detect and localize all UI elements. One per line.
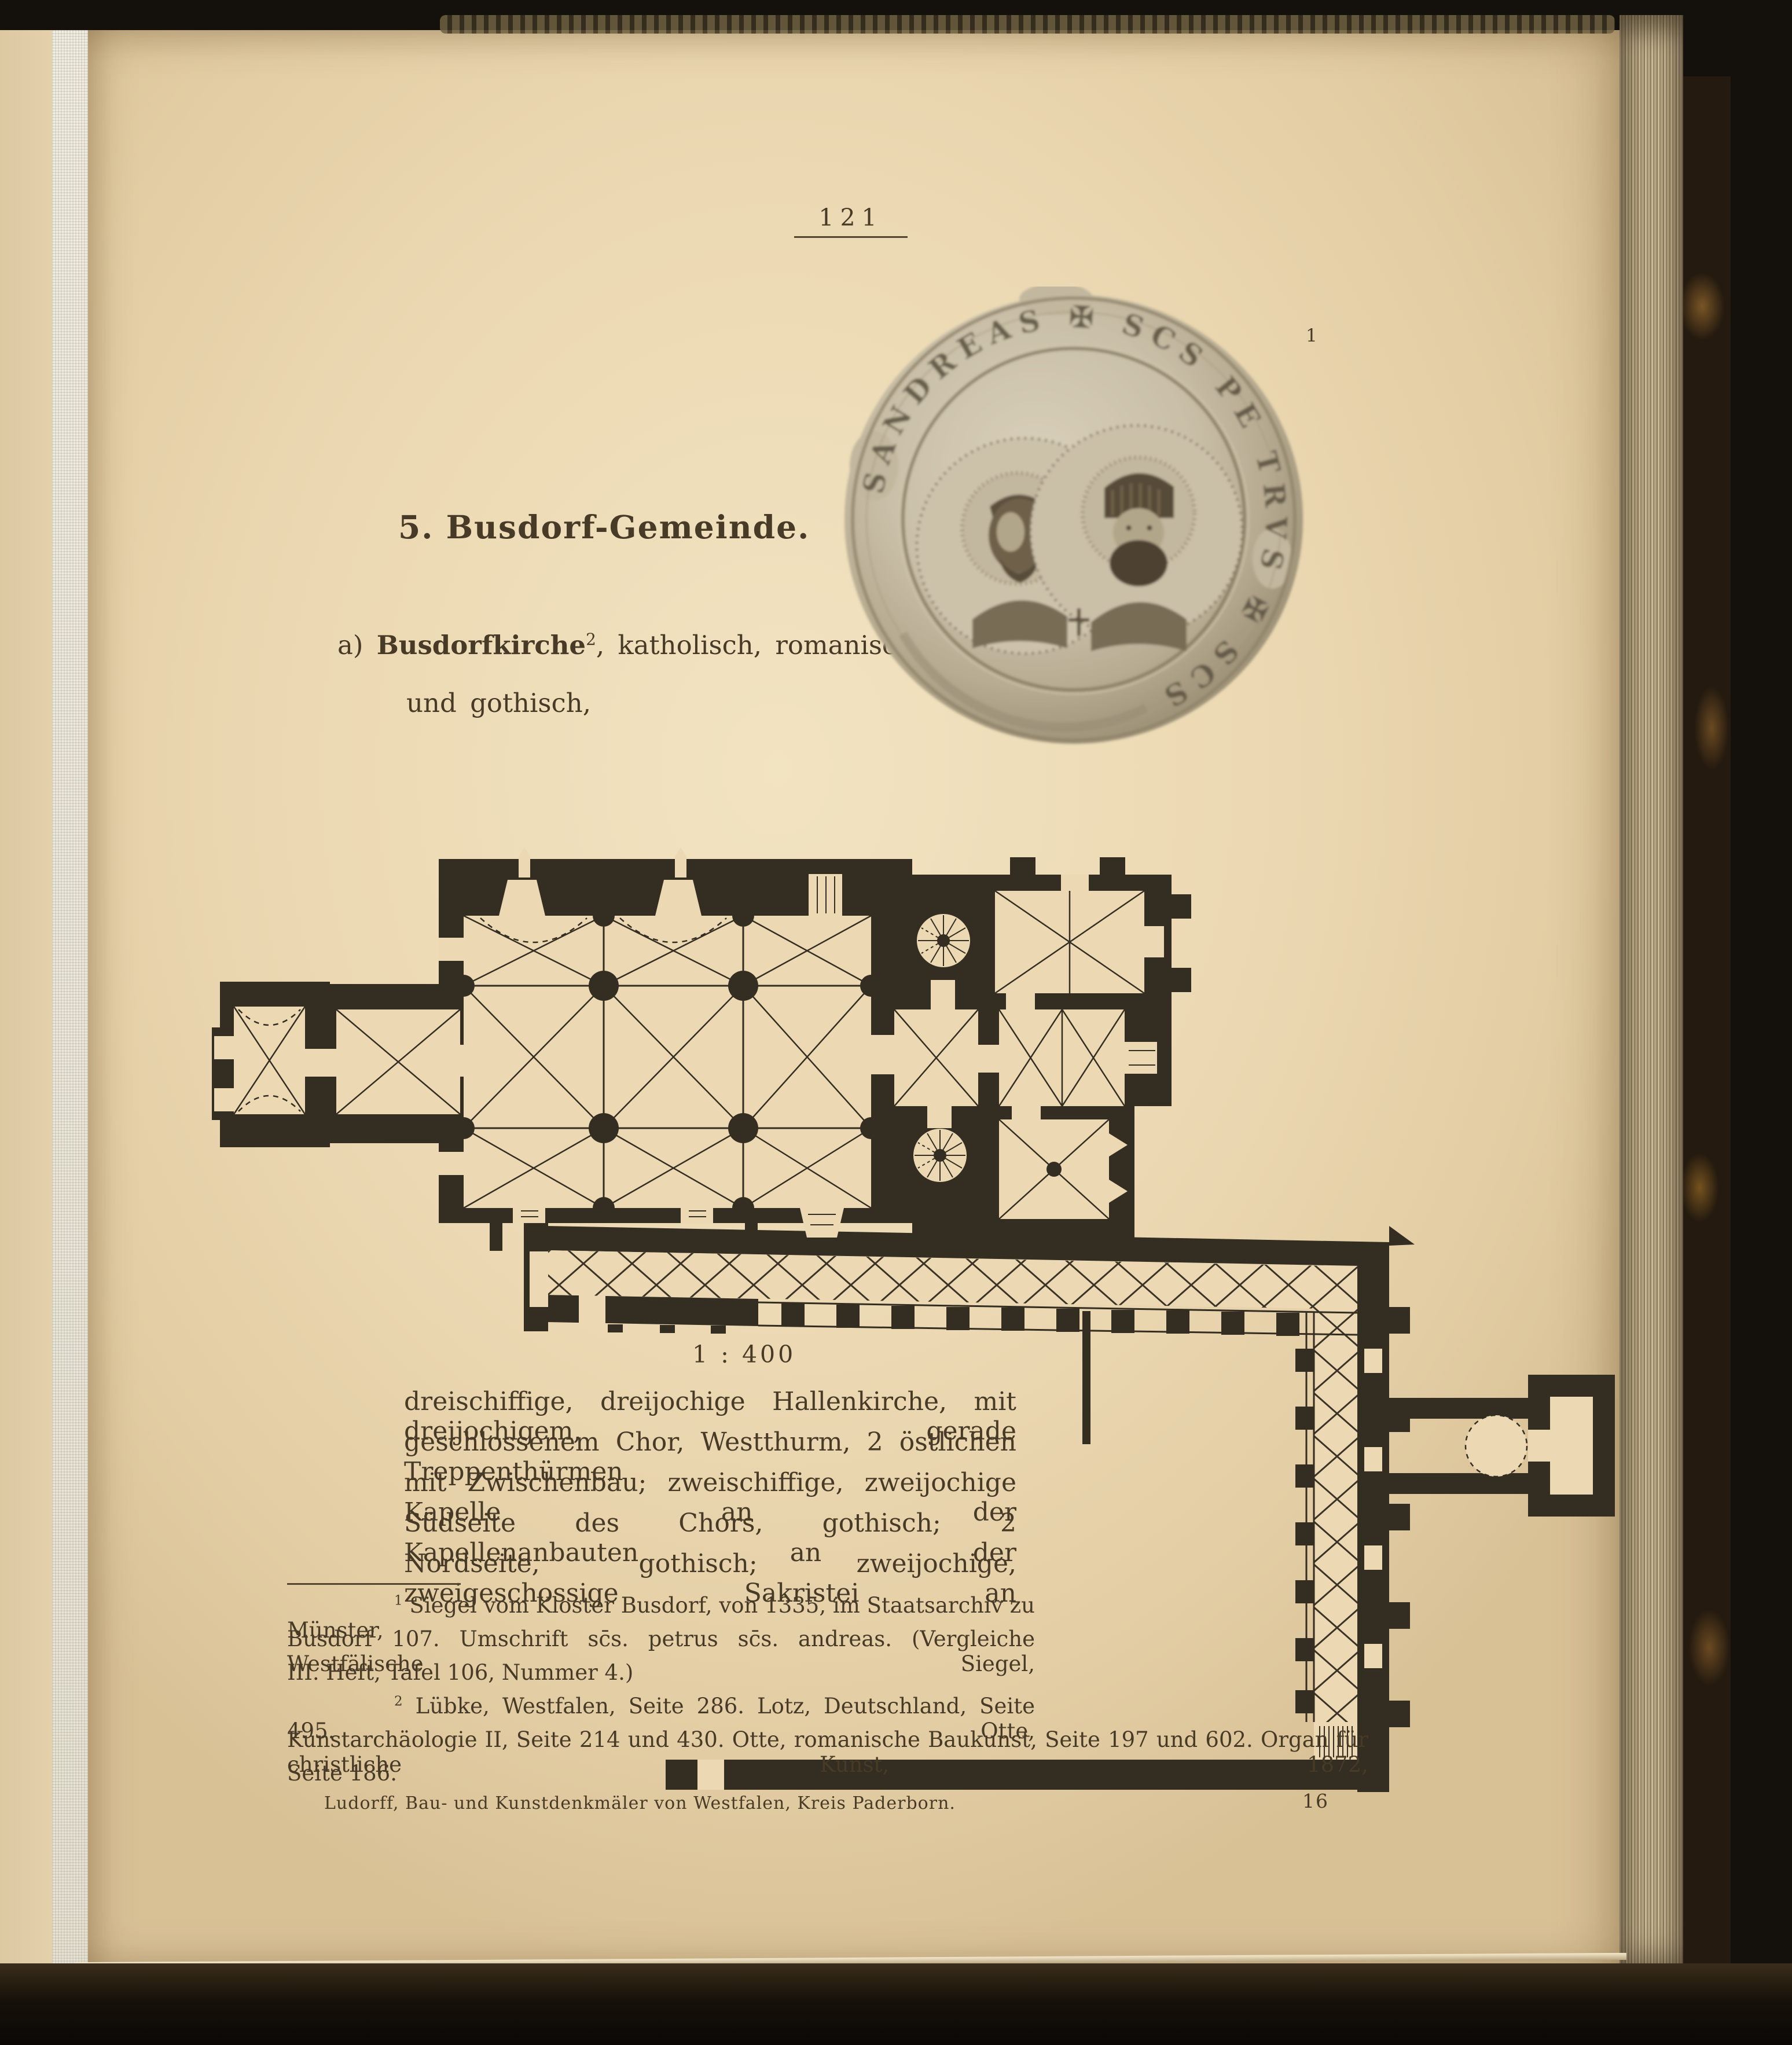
footnote-2-line: Seite 186. — [287, 1761, 1035, 1794]
scale-label: 1 : 400 — [692, 1341, 796, 1368]
footnote-2-line: Kunstarchäologie II, Seite 214 und 430. … — [287, 1727, 1368, 1761]
subheading-line1: a) Busdorfkirche2, katholisch, romanisch — [337, 630, 913, 660]
body-line: Nordseite, gothisch; zweijochige, zweige… — [404, 1549, 1016, 1589]
footnote-marker: 1 — [394, 1594, 403, 1609]
bottom-shadow — [0, 1963, 1792, 2045]
headband — [440, 15, 1615, 34]
seal-photo: SANDREAS ✠ SCS PE TRVS ✠ SCS — [833, 287, 1320, 767]
subheading-line2: und gothisch, — [406, 688, 591, 718]
adjacent-page-edge — [0, 30, 52, 1993]
footnote-1-line: Busdorf 107. Umschrift sc̄s. petrus sc̄s… — [287, 1627, 1035, 1660]
page-edge-striations — [1620, 15, 1683, 1981]
body-line: mit Zwischenbau; zweischiffige, zweijoch… — [404, 1468, 1016, 1508]
book-cover-edge — [1683, 76, 1731, 1992]
footer-title: Ludorff, Bau- und Kunstdenkmäler von Wes… — [324, 1793, 956, 1813]
sheet-number: 16 — [1302, 1790, 1329, 1812]
item-marker: a) — [337, 630, 363, 660]
page-number: 121 — [794, 204, 908, 238]
footnote-1-line: III. Heft, Tafel 106, Nummer 4.) — [287, 1660, 1035, 1694]
footnote-rule — [287, 1583, 461, 1585]
church-name: Busdorfkirche — [377, 630, 586, 660]
footnote-2-line: 2 Lübke, Westfalen, Seite 286. Lotz, Deu… — [287, 1694, 1035, 1727]
section-heading: 5. Busdorf-Gemeinde. — [398, 508, 810, 546]
body-line: Südseite des Chors, gothisch; 2 Kapellen… — [404, 1508, 1016, 1549]
binding-cloth-strip — [52, 30, 88, 1993]
body-paragraph: dreischiffige, dreijochige Hallenkirche,… — [404, 1387, 1016, 1589]
footnote-marker: 2 — [394, 1694, 403, 1709]
footnote-1-line: 1 Siegel vom Kloster Busdorf, von 1335, … — [287, 1593, 1035, 1627]
book-photograph: 121 5. Busdorf-Gemeinde. a) Busdorfkirch… — [0, 0, 1792, 2045]
footnote-ref: 2 — [586, 630, 596, 649]
body-line: geschlossenem Chor, Westthurm, 2 östlich… — [404, 1427, 1016, 1468]
seal-impression: SANDREAS ✠ SCS PE TRVS ✠ SCS — [844, 287, 1303, 744]
body-line: dreischiffige, dreijochige Hallenkirche,… — [404, 1387, 1016, 1427]
